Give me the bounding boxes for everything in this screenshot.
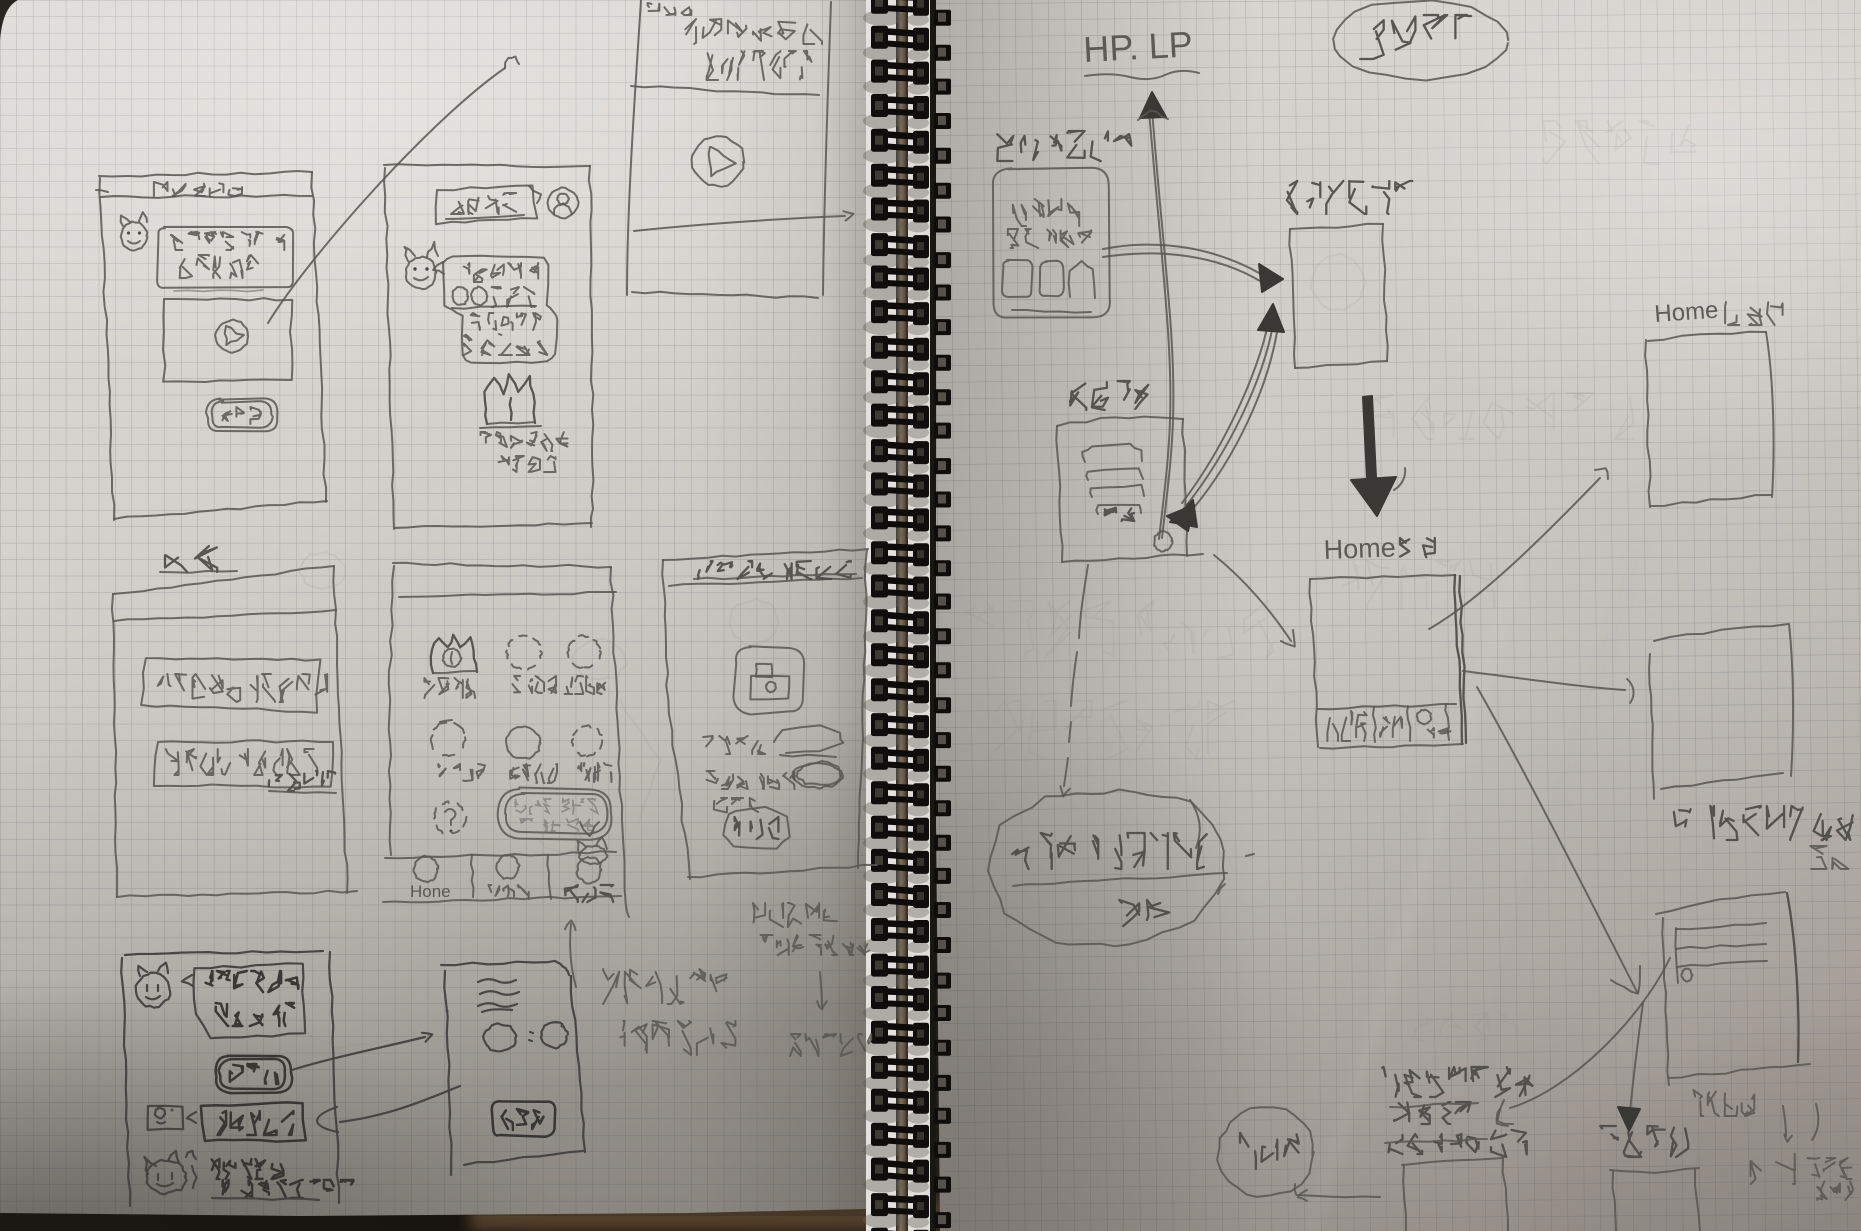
svg-text:Hone: Hone: [410, 882, 451, 901]
svg-text:HP. LP: HP. LP: [1082, 23, 1193, 70]
svg-text:Home: Home: [1323, 533, 1396, 565]
svg-text:Home: Home: [1654, 297, 1720, 328]
